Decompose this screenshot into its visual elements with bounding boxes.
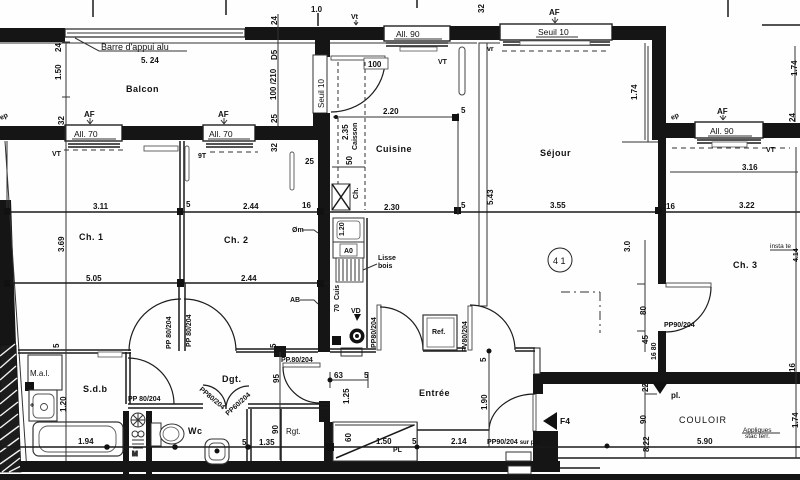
svg-text:Seuil 10: Seuil 10 (317, 79, 326, 108)
svg-text:2.30: 2.30 (384, 203, 400, 212)
svg-text:2.14: 2.14 (451, 437, 467, 446)
svg-text:Lisse: Lisse (378, 255, 396, 262)
svg-text:1.35: 1.35 (259, 438, 275, 447)
svg-text:Wc: Wc (188, 426, 203, 436)
svg-text:3.22: 3.22 (739, 201, 755, 210)
svg-text:2.44: 2.44 (243, 202, 259, 211)
svg-text:80: 80 (639, 306, 648, 315)
svg-text:D5: D5 (270, 49, 279, 60)
svg-text:24: 24 (54, 43, 63, 52)
svg-text:PP90/204: PP90/204 (664, 322, 695, 329)
svg-text:A0: A0 (344, 248, 353, 255)
svg-text:insta te: insta te (770, 243, 791, 250)
svg-text:5: 5 (52, 343, 61, 348)
svg-text:AF: AF (549, 8, 560, 17)
svg-text:2.20: 2.20 (383, 107, 399, 116)
svg-text:Barre d'appui alu: Barre d'appui alu (101, 42, 169, 52)
svg-text:60: 60 (344, 433, 353, 442)
svg-text:1.25: 1.25 (342, 388, 351, 404)
svg-text:5: 5 (461, 201, 466, 210)
svg-text:3.16: 3.16 (742, 163, 758, 172)
svg-text:Cuis: Cuis (334, 285, 341, 300)
svg-text:1.90: 1.90 (480, 394, 489, 410)
svg-text:24: 24 (788, 113, 797, 122)
svg-text:32: 32 (270, 143, 279, 152)
svg-text:16 80: 16 80 (651, 342, 658, 360)
svg-text:100 /210: 100 /210 (269, 68, 278, 100)
svg-text:Ref.: Ref. (432, 329, 445, 336)
svg-text:Cuisine: Cuisine (376, 144, 412, 154)
svg-text:F4: F4 (560, 416, 570, 426)
svg-text:COULOIR: COULOIR (679, 415, 727, 425)
svg-text:1.50: 1.50 (376, 437, 392, 446)
svg-text:5: 5 (412, 437, 417, 446)
svg-text:1.20: 1.20 (339, 222, 346, 236)
svg-text:5: 5 (461, 106, 466, 115)
svg-text:PP 80/204: PP 80/204 (166, 316, 173, 349)
svg-text:Dgt.: Dgt. (222, 374, 242, 384)
svg-text:32: 32 (57, 116, 66, 125)
svg-text:5.90: 5.90 (697, 437, 713, 446)
svg-text:90: 90 (639, 415, 648, 424)
svg-text:AF: AF (717, 107, 728, 116)
svg-text:PP90/204 sur pal.: PP90/204 sur pal. (487, 439, 541, 446)
svg-text:3.55: 3.55 (550, 201, 566, 210)
svg-text:2.35: 2.35 (341, 124, 350, 140)
svg-text:1.94: 1.94 (78, 437, 94, 446)
svg-text:VT: VT (52, 151, 62, 158)
svg-text:AB: AB (290, 297, 300, 304)
svg-text:Ch. 1: Ch. 1 (79, 232, 104, 242)
svg-text:Rgt.: Rgt. (286, 427, 301, 436)
svg-text:AF: AF (218, 110, 229, 119)
svg-text:5.43: 5.43 (486, 189, 495, 205)
svg-text:M: M (132, 451, 138, 458)
svg-text:90: 90 (271, 425, 280, 434)
svg-text:5: 5 (242, 438, 247, 447)
svg-text:24: 24 (270, 16, 279, 25)
svg-text:5.05: 5.05 (86, 274, 102, 283)
svg-text:All. 90: All. 90 (710, 126, 734, 136)
svg-text:stac terr.: stac terr. (745, 433, 770, 440)
svg-text:2.44: 2.44 (241, 274, 257, 283)
svg-text:3.69: 3.69 (57, 236, 66, 252)
svg-text:25: 25 (270, 114, 279, 123)
svg-text:16: 16 (666, 202, 675, 211)
svg-text:AF: AF (84, 110, 95, 119)
svg-text:4 1: 4 1 (553, 256, 566, 266)
svg-text:100: 100 (368, 60, 382, 69)
svg-text:1.74: 1.74 (790, 60, 799, 76)
svg-text:5. 24: 5. 24 (141, 56, 159, 65)
svg-text:8.22: 8.22 (642, 436, 651, 452)
svg-text:3.11: 3.11 (93, 202, 109, 211)
svg-text:63: 63 (334, 371, 343, 380)
svg-text:Balcon: Balcon (126, 84, 159, 94)
svg-text:Ch.: Ch. (353, 188, 360, 199)
svg-text:1.50: 1.50 (54, 64, 63, 80)
svg-text:Ch. 2: Ch. 2 (224, 235, 249, 245)
svg-text:5: 5 (186, 200, 191, 209)
svg-text:16: 16 (302, 201, 311, 210)
svg-text:1.0: 1.0 (311, 5, 323, 14)
svg-text:4.14: 4.14 (793, 248, 800, 262)
svg-text:50: 50 (345, 156, 354, 165)
svg-text:22: 22 (641, 383, 650, 392)
svg-text:1.20: 1.20 (59, 396, 68, 412)
svg-text:9T: 9T (198, 153, 207, 160)
svg-text:All. 70: All. 70 (209, 129, 233, 139)
svg-text:95: 95 (272, 374, 281, 383)
svg-text:Vt: Vt (351, 14, 359, 21)
svg-text:PP 80/204: PP 80/204 (186, 314, 193, 347)
svg-text:Caisson: Caisson (352, 123, 359, 150)
svg-text:25: 25 (305, 157, 314, 166)
svg-text:5: 5 (269, 343, 278, 348)
svg-text:PP80/204: PP80/204 (371, 317, 378, 348)
svg-text:Ch. 3: Ch. 3 (733, 260, 758, 270)
svg-text:32: 32 (477, 4, 486, 13)
svg-text:S.d.b: S.d.b (83, 384, 108, 394)
svg-text:70: 70 (334, 304, 341, 312)
svg-text:16: 16 (788, 363, 797, 372)
svg-text:VT: VT (766, 147, 776, 154)
svg-text:M.a.l.: M.a.l. (30, 369, 50, 378)
svg-text:pl.: pl. (671, 391, 680, 400)
svg-text:PP.80/204: PP.80/204 (281, 357, 313, 364)
svg-text:Øm: Øm (292, 227, 304, 234)
svg-text:vr: vr (487, 46, 494, 53)
svg-text:1.74: 1.74 (630, 84, 639, 100)
svg-text:3.0: 3.0 (623, 240, 632, 252)
svg-text:PV80/204: PV80/204 (462, 321, 469, 352)
svg-text:All. 90: All. 90 (396, 29, 420, 39)
svg-text:VT: VT (438, 59, 448, 66)
svg-text:Séjour: Séjour (540, 148, 571, 158)
svg-text:5: 5 (479, 357, 488, 362)
svg-text:All. 70: All. 70 (74, 129, 98, 139)
svg-text:bois: bois (378, 263, 392, 270)
svg-text:Seuil 10: Seuil 10 (538, 27, 569, 37)
svg-text:5: 5 (364, 371, 369, 380)
svg-text:Entrée: Entrée (419, 388, 450, 398)
svg-text:45: 45 (641, 335, 650, 344)
svg-text:1.74: 1.74 (791, 412, 800, 428)
svg-text:PL: PL (393, 447, 403, 454)
svg-text:VD: VD (351, 308, 361, 315)
svg-text:PP 80/204: PP 80/204 (128, 396, 161, 403)
